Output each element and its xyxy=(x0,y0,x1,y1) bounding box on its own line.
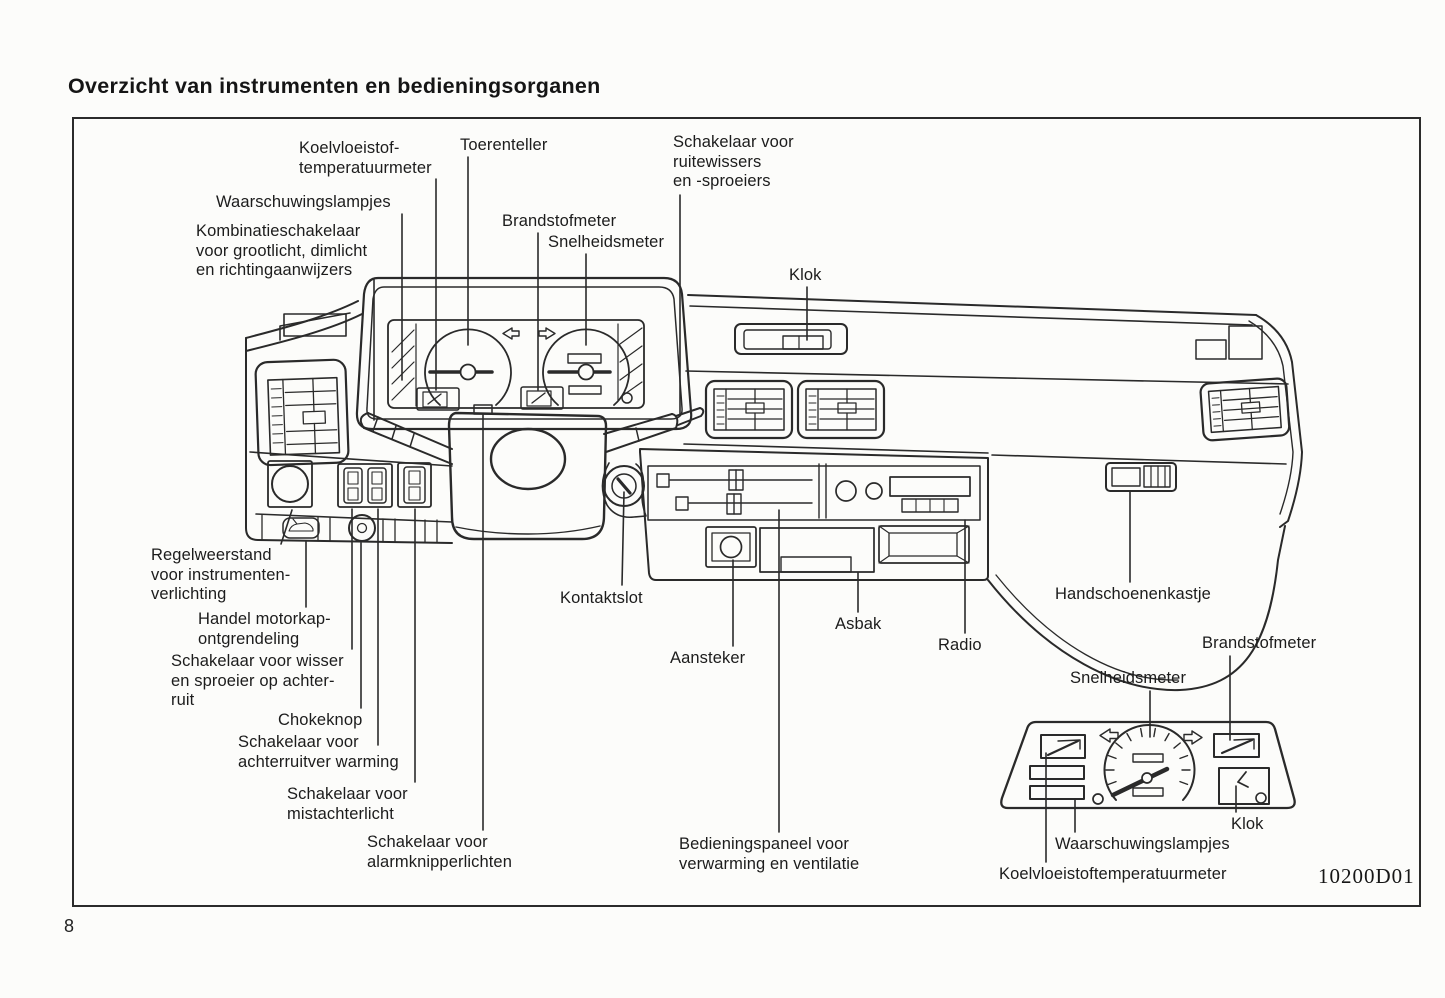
right-air-vent xyxy=(1200,378,1290,441)
horn-pad xyxy=(491,429,565,489)
dimmer-knob xyxy=(272,466,308,502)
label-regelweerstand: Regelweerstand voor instrumenten- verlic… xyxy=(151,546,290,605)
label-inset-brandstofmeter: Brandstofmeter xyxy=(1202,634,1316,654)
inset-fuel-gauge xyxy=(1214,734,1259,757)
label-koelvloeistoftemperatuurmeter: Koelvloeistof- temperatuurmeter xyxy=(299,139,432,178)
left-switch-panel xyxy=(262,461,437,542)
cluster-hatch-right xyxy=(618,324,642,400)
dash-clock xyxy=(735,324,847,354)
label-klok: Klok xyxy=(789,266,822,286)
label-inset-klok: Klok xyxy=(1231,815,1264,835)
label-alarmknipperlichten: Schakelaar voor alarmknipperlichten xyxy=(367,833,512,872)
label-inset-snelheidsmeter: Snelheidsmeter xyxy=(1070,669,1186,689)
label-handschoenenkastje: Handschoenenkastje xyxy=(1055,585,1211,605)
figure-code: 10200D01 xyxy=(1318,864,1415,889)
instrument-cluster xyxy=(357,278,691,429)
label-mistachterlicht: Schakelaar voor mistachterlicht xyxy=(287,785,408,824)
turn-signal-arrows xyxy=(503,328,555,339)
label-aansteker: Aansteker xyxy=(670,649,745,669)
steering-column xyxy=(361,405,703,539)
fuel-gauge-window xyxy=(521,387,563,409)
heater-control-panel xyxy=(657,470,812,514)
inset-clock xyxy=(1219,768,1269,804)
storage-slot xyxy=(879,526,969,563)
label-chokeknop: Chokeknop xyxy=(278,711,362,731)
label-waarschuwingslampjes: Waarschuwingslampjes xyxy=(216,193,391,213)
label-inset-waarschuwingslampjes: Waarschuwingslampjes xyxy=(1055,835,1230,855)
coolant-temp-gauge-window xyxy=(417,388,459,410)
center-console xyxy=(640,449,988,580)
cluster-hatch-left xyxy=(392,324,416,406)
label-ruitewissers: Schakelaar voor ruitewissers en -sproeie… xyxy=(673,133,794,192)
speedometer-gauge xyxy=(543,329,632,405)
label-motorkap: Handel motorkap- ontgrendeling xyxy=(198,610,331,649)
manual-page: Overzicht van instrumenten en bedienings… xyxy=(0,0,1445,998)
left-air-vent xyxy=(255,359,349,465)
inset-warning-lamp-1 xyxy=(1030,766,1084,779)
rocker-switch-2 xyxy=(368,468,386,503)
combination-stalk xyxy=(361,413,452,464)
inset-warning-lamp-2 xyxy=(1030,786,1084,799)
label-wisser-achterruit: Schakelaar voor wisser en sproeier op ac… xyxy=(171,652,344,711)
label-kombinatieschakelaar: Kombinatieschakelaar voor grootlicht, di… xyxy=(196,222,367,281)
center-air-vent-left xyxy=(706,381,792,438)
radio-unit xyxy=(836,477,970,512)
inset-trip-reset xyxy=(1093,794,1103,804)
label-kontaktslot: Kontaktslot xyxy=(560,589,643,609)
label-achterruitverwarming: Schakelaar voor achterruitver warming xyxy=(238,733,399,772)
label-brandstofmeter: Brandstofmeter xyxy=(502,212,616,232)
label-inset-koelvloeistoftemperatuurmeter: Koelvloeistoftemperatuurmeter xyxy=(999,865,1227,885)
label-bedieningspaneel: Bedieningspaneel voor verwarming en vent… xyxy=(679,835,859,874)
page-number: 8 xyxy=(64,916,74,937)
glovebox-latch xyxy=(1106,463,1176,491)
rocker-switch-3 xyxy=(404,467,425,503)
rocker-switch-1 xyxy=(344,468,362,503)
label-asbak: Asbak xyxy=(835,615,881,635)
label-toerenteller: Toerenteller xyxy=(460,136,547,156)
cigarette-lighter xyxy=(706,527,756,567)
callout-lines xyxy=(281,157,1236,862)
ashtray xyxy=(760,528,874,572)
center-air-vent-right xyxy=(798,381,884,438)
inset-coolant-gauge xyxy=(1041,735,1085,758)
label-snelheidsmeter: Snelheidsmeter xyxy=(548,233,664,253)
label-radio: Radio xyxy=(938,636,982,656)
